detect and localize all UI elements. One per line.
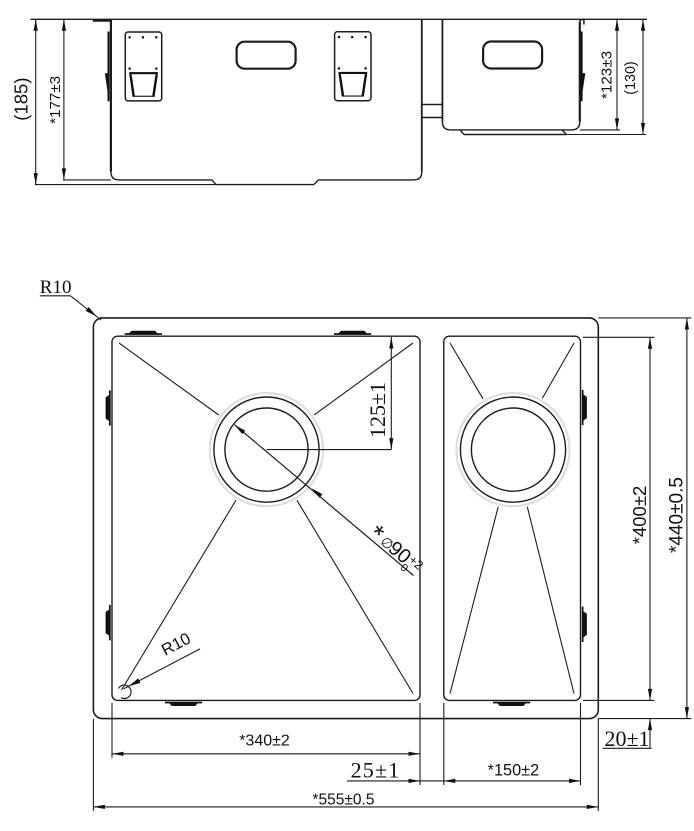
svg-text:20±1: 20±1	[604, 726, 649, 751]
svg-text:*555±0.5: *555±0.5	[313, 791, 375, 808]
svg-text:(130): (130)	[623, 61, 639, 94]
svg-text:*177±3: *177±3	[47, 76, 64, 124]
svg-text:25±1: 25±1	[351, 757, 401, 782]
svg-text:125±1: 125±1	[365, 382, 390, 438]
svg-text:*440±0.5: *440±0.5	[666, 477, 687, 553]
svg-text:*150±2: *150±2	[488, 762, 540, 780]
svg-text:(185): (185)	[11, 77, 32, 120]
svg-text:*123±3: *123±3	[599, 51, 616, 99]
svg-text:*340±2: *340±2	[239, 733, 290, 750]
svg-text:R10: R10	[40, 277, 72, 298]
svg-text:*400±2: *400±2	[629, 486, 650, 545]
